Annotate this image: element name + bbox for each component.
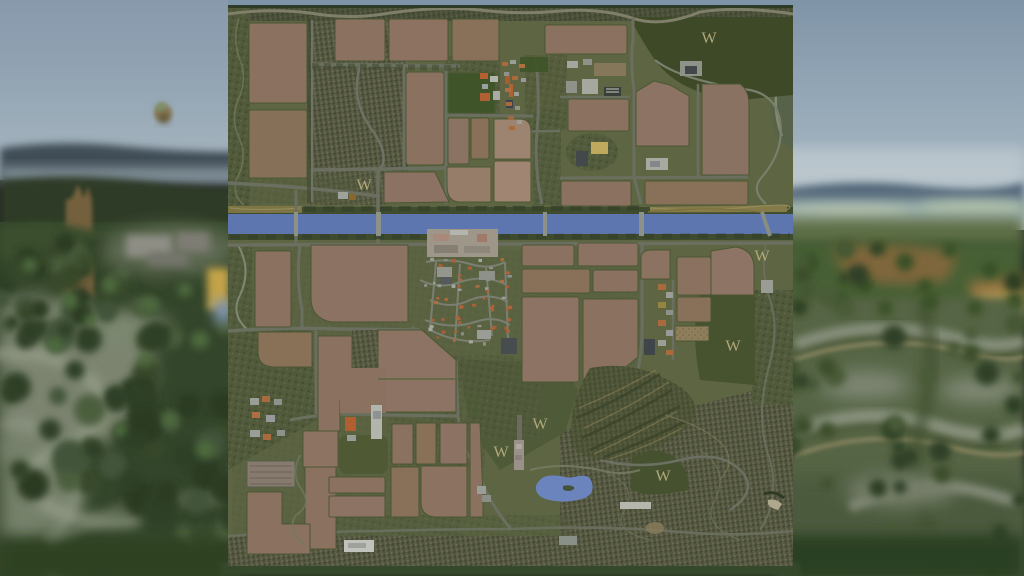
svg-text:W: W	[493, 444, 509, 461]
svg-text:W: W	[701, 30, 717, 47]
svg-text:W: W	[356, 177, 372, 194]
svg-text:W: W	[532, 416, 548, 433]
svg-text:W: W	[655, 468, 671, 485]
svg-text:W: W	[754, 248, 770, 265]
svg-text:W: W	[725, 338, 741, 355]
